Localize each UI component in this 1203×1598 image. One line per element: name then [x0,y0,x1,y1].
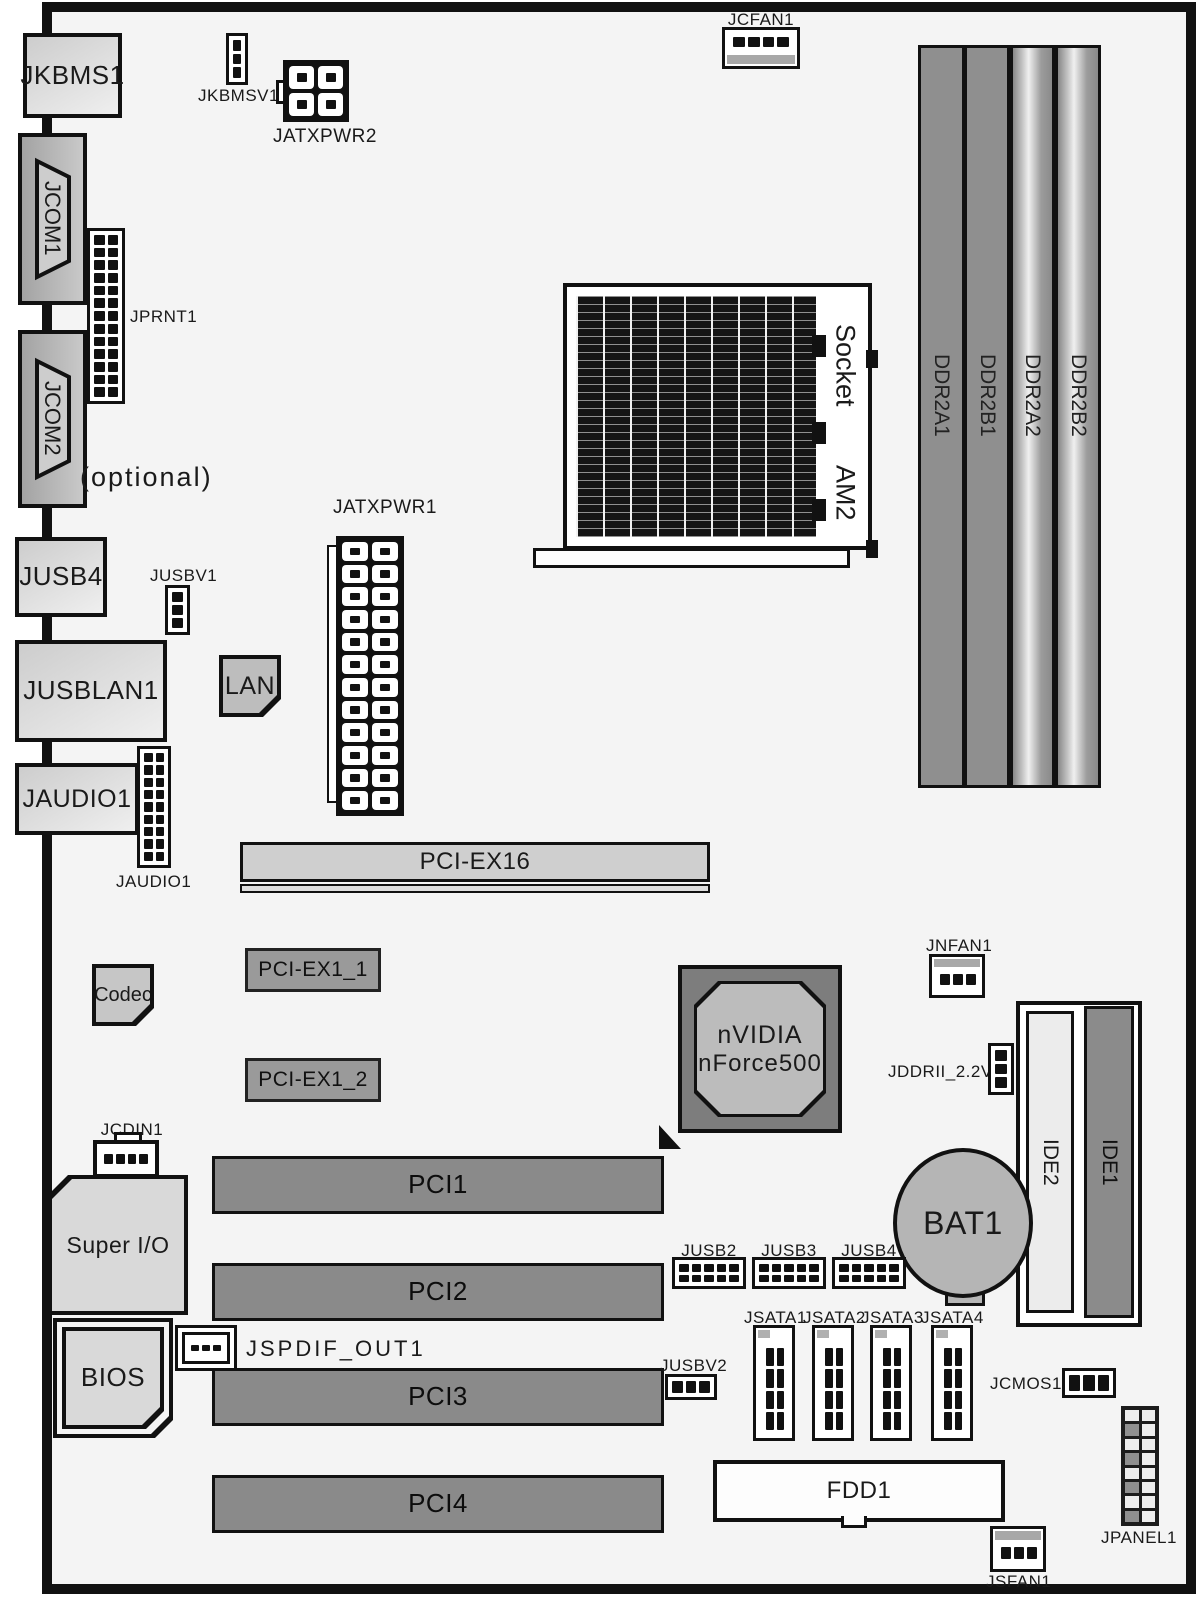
jsata4-connector [931,1325,973,1441]
jsata4-key [936,1330,948,1338]
dimm-slot-ddr2b2-label: DDR2B2 [1063,330,1093,460]
jusbv1-header-pins [165,585,190,635]
cpu-socket-body: Socket AM2 [563,283,872,550]
jddrii-label: JDDRII_2.2V [888,1062,984,1082]
lan-chip-body: LAN [223,659,277,713]
bios-chip-label: BIOS [81,1363,145,1393]
jatxpwr2-connector [283,60,349,122]
jddrii-header-pins [988,1043,1014,1095]
jsata3-key [875,1330,887,1338]
port-jusb4-label: JUSB4 [19,562,102,592]
slot-pci2-label: PCI2 [408,1277,468,1307]
superio-chip-body: Super I/O [52,1179,184,1311]
jspdif-pins [187,1341,225,1355]
jusb2-header-pins [672,1257,746,1289]
slot-pci1: PCI1 [212,1156,664,1214]
jusbv2-header-pins [665,1374,717,1400]
slot-pciex16-label: PCI-EX16 [420,848,531,876]
jcmos1-label: JCMOS1 [990,1374,1058,1394]
jsata2-key [817,1330,829,1338]
slot-ide1-label: IDE1 [1097,1139,1121,1186]
jsata3-pins [879,1344,905,1434]
nvidia-chipset: nVIDIA nForce500 [678,965,842,1133]
port-jcom2: JCOM2 [18,330,87,508]
jcfan1-strip [727,55,795,64]
jsata4-pins [940,1344,966,1434]
cpu-socket-pin-grid [576,296,816,537]
lan-chip: LAN [219,655,281,717]
battery: BAT1 [893,1148,1033,1298]
jnfan1-strip [934,959,980,967]
port-jusblan1: JUSBLAN1 [15,640,167,742]
jnfan1-connector [929,954,985,998]
jusbv1-label: JUSBV1 [150,566,214,586]
jkbmsv1-header-pins [226,33,248,85]
fdd1-notch [841,1516,867,1528]
jsfan1-label: JSFAN1 [986,1572,1050,1592]
slot-pci4: PCI4 [212,1475,664,1533]
jsata2-connector [812,1325,854,1441]
jsfan1-strip [995,1531,1041,1540]
slot-pciex1-1-label: PCI-EX1_1 [258,958,368,982]
dimm-slot-ddr2a2-label: DDR2A2 [1017,330,1047,460]
jcfan1-pins [729,33,793,51]
jpanel1-header [1121,1406,1159,1526]
jspdif-label: JSPDIF_OUT1 [246,1336,442,1361]
nvidia-chipset-die-border: nVIDIA nForce500 [694,981,826,1117]
socket-lug-bottom [866,540,878,558]
jcdin1-pins [100,1150,152,1168]
jprnt1-label: JPRNT1 [130,307,192,327]
codec-chip: Codec [92,964,154,1026]
optional-note: (optional) [80,462,206,493]
slot-pciex1-1: PCI-EX1_1 [245,948,381,992]
port-jcom1-label: JCOM1 [34,159,70,277]
nvidia-label-line2: nForce500 [698,1050,822,1078]
slot-pciex16: PCI-EX16 [240,842,710,882]
port-jkbms1: JKBMS1 [23,33,122,118]
jsfan1-pins [997,1543,1041,1563]
jprnt1-header-pins [87,228,125,404]
slot-ide1: IDE1 [1084,1006,1134,1318]
jatxpwr2-label: JATXPWR2 [273,126,363,148]
cpu-socket-label-word2: AM2 [822,447,868,539]
jsata1-pins [762,1344,788,1434]
jusbv2-label: JUSBV2 [660,1356,726,1376]
slot-ide2-label: IDE2 [1038,1139,1062,1186]
jaudio1-header-pins [137,746,171,868]
cpu-socket-label-word1: Socket [822,295,868,435]
jusb4-header-pins [832,1257,906,1289]
slot-ide2: IDE2 [1026,1011,1074,1313]
jusb3-header-pins [752,1257,826,1289]
nvidia-chipset-die: nVIDIA nForce500 [697,984,823,1114]
jaudio1-header-label: JAUDIO1 [116,872,186,892]
jcdin1-connector [93,1140,159,1178]
jnfan1-label: JNFAN1 [926,936,988,956]
superio-chip-label: Super I/O [67,1232,170,1258]
jnfan1-pins [936,970,980,989]
dimm-slot-ddr2b1-label: DDR2B1 [972,330,1002,460]
codec-chip-body: Codec [96,968,150,1022]
motherboard-layout-diagram: JKBMS1 JKBMSV1 JATXPWR2 JCFAN1 JCOM1 JPR… [0,0,1203,1598]
cpu-socket-base-bar [533,548,850,568]
port-jcom2-label: JCOM2 [34,359,70,477]
jsfan1-connector [990,1526,1046,1572]
slot-pci1-label: PCI1 [408,1170,468,1200]
slot-pci4-label: PCI4 [408,1489,468,1519]
superio-chip: Super I/O [48,1175,188,1315]
slot-pciex1-2-label: PCI-EX1_2 [258,1068,368,1092]
port-jkbms1-label: JKBMS1 [20,61,124,91]
slot-pci2: PCI2 [212,1263,664,1321]
jsata1-connector [753,1325,795,1441]
port-jusblan1-label: JUSBLAN1 [23,676,159,706]
jpanel1-label: JPANEL1 [1099,1528,1179,1548]
battery-label: BAT1 [923,1205,1003,1242]
jspdif-connector [175,1325,237,1371]
socket-lug-top [866,350,878,368]
jkbmsv1-label: JKBMSV1 [198,86,274,106]
slot-fdd1: FDD1 [713,1460,1005,1522]
codec-chip-label: Codec [94,984,152,1007]
bios-chip: BIOS [53,1318,173,1438]
nvidia-label-line1: nVIDIA [717,1021,802,1050]
jsata1-key [758,1330,770,1338]
jcfan1-connector [722,27,800,69]
slot-pciex16-lip [240,884,710,893]
slot-pciex1-2: PCI-EX1_2 [245,1058,381,1102]
dimm-slot-ddr2a1-label: DDR2A1 [926,330,956,460]
slot-pci3: PCI3 [212,1368,664,1426]
bios-chip-body: BIOS [66,1331,160,1425]
jcmos1-header-pins [1062,1368,1116,1398]
bios-chip-ring: BIOS [57,1322,169,1434]
slot-fdd1-label: FDD1 [827,1477,892,1505]
slot-pci3-label: PCI3 [408,1382,468,1412]
port-jusb4: JUSB4 [15,537,107,617]
jatxpwr1-label: JATXPWR1 [333,497,419,519]
port-jaudio1-label: JAUDIO1 [22,785,131,814]
bios-chip-inner-border: BIOS [62,1327,164,1429]
lan-chip-label: LAN [225,672,275,701]
port-jaudio1: JAUDIO1 [15,763,139,835]
jspdif-connector-inner [182,1332,230,1364]
jsata2-pins [821,1344,847,1434]
jatxpwr1-connector [336,536,404,816]
jsata3-connector [870,1325,912,1441]
port-jcom1: JCOM1 [18,133,87,305]
